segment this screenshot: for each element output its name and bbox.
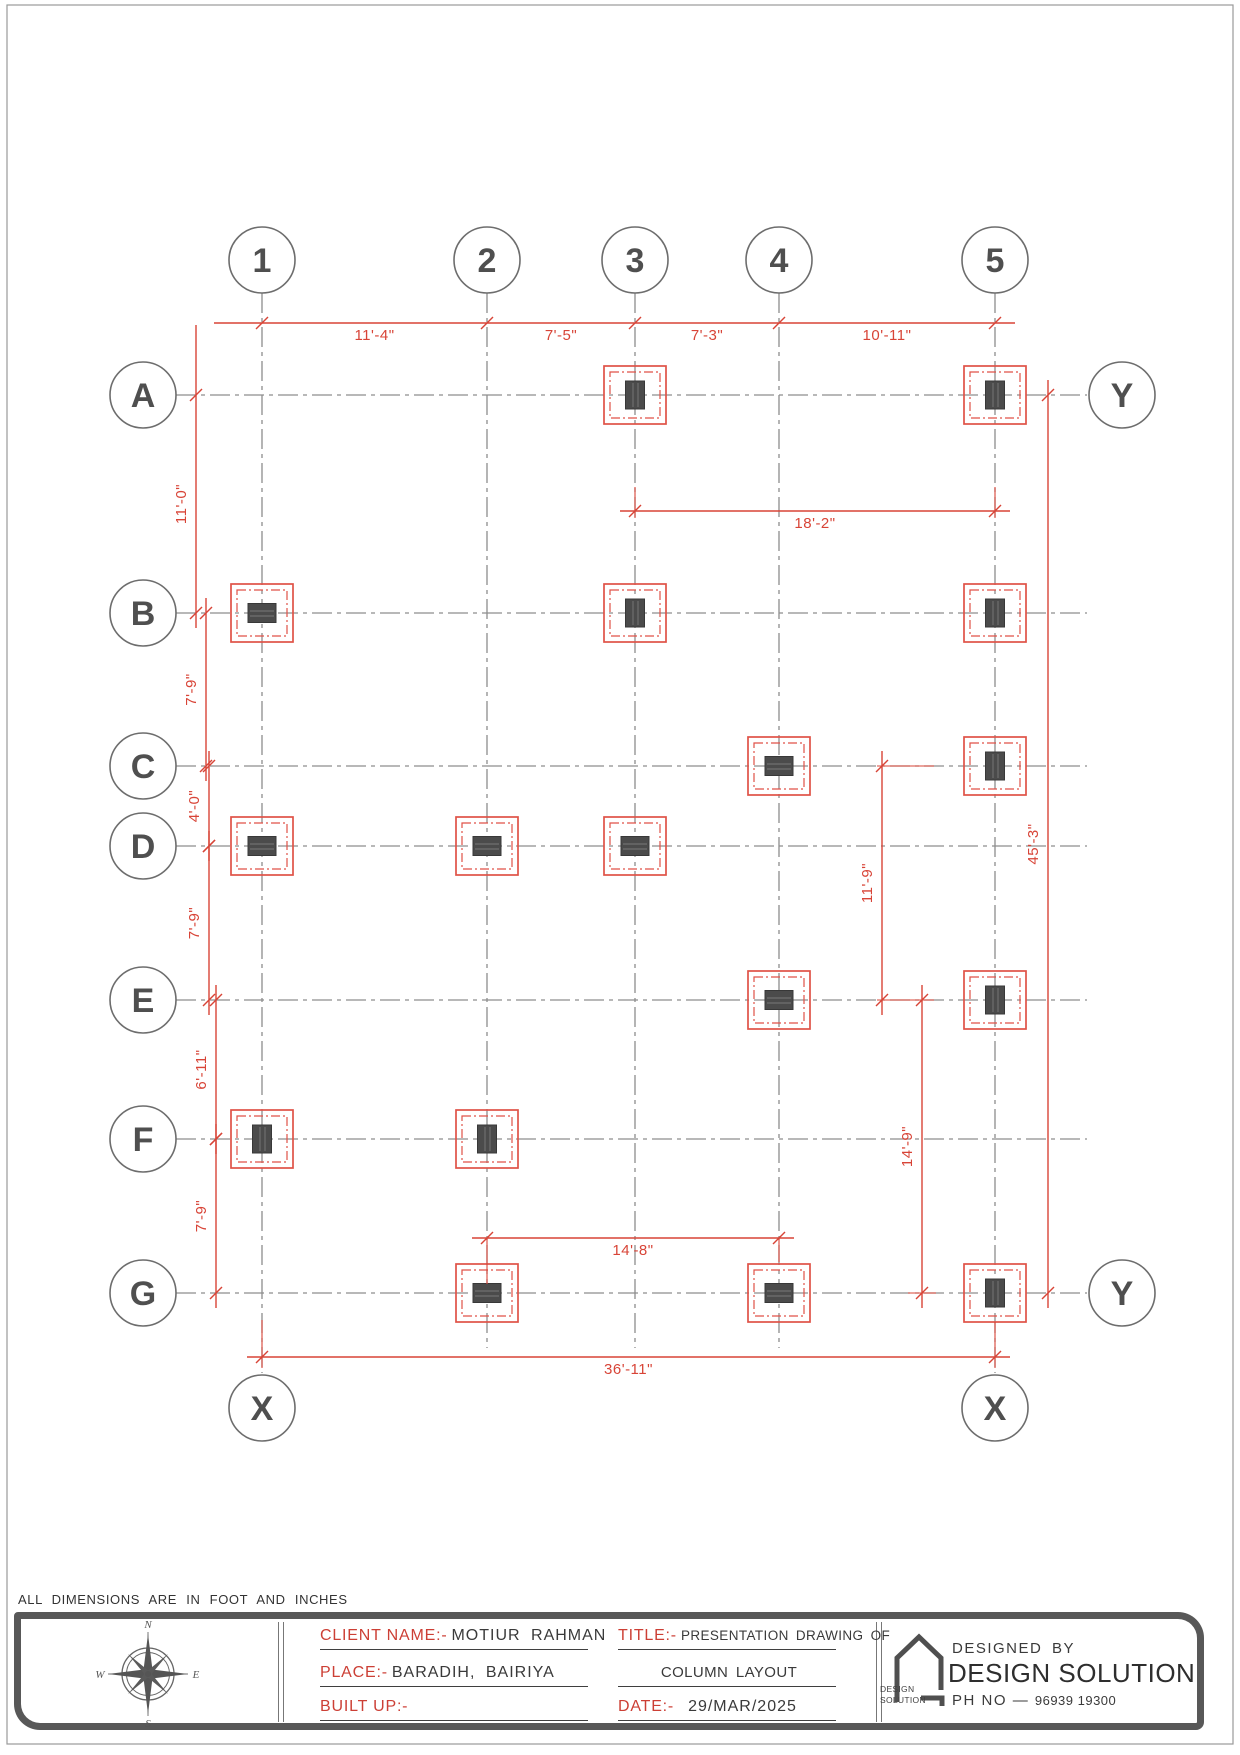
- field-client-name: CLIENT NAME:-MOTIUR RAHMAN: [320, 1627, 588, 1650]
- title-value-line2: COLUMN LAYOUT: [661, 1664, 797, 1681]
- column-B1: [248, 604, 276, 623]
- phone-separator: —: [1013, 1692, 1030, 1709]
- field-built-up: BUILT UP:-: [320, 1698, 588, 1721]
- dim-label-v-0-0: 11'-0": [173, 484, 190, 524]
- column-E4: [765, 991, 793, 1010]
- compass-label-n: N: [143, 1619, 152, 1631]
- column-F1: [253, 1125, 272, 1153]
- field-title-line2: COLUMN LAYOUT: [618, 1664, 836, 1687]
- grid-bubble-5-label: 5: [986, 242, 1005, 280]
- grid-bubble-D-label: D: [131, 828, 156, 866]
- brand-name: DESIGN SOLUTION: [948, 1658, 1195, 1689]
- date-value: 29/MAR/2025: [688, 1698, 797, 1715]
- logo-word-solution: SOLUTION: [880, 1695, 926, 1705]
- column-C5: [986, 752, 1005, 780]
- dim-label-h-0-3: 10'-11": [863, 327, 912, 344]
- grid-bubble-1-label: 1: [253, 242, 272, 280]
- dim-label-h-0-0: 11'-4": [354, 327, 394, 344]
- grid-bubble-3-label: 3: [626, 242, 645, 280]
- compass-center: [145, 1671, 151, 1677]
- column-F2: [478, 1125, 497, 1153]
- grid-bubble-G-label: G: [130, 1275, 156, 1313]
- compass-rose-icon: N S W E: [92, 1618, 204, 1730]
- column-A5: [986, 381, 1005, 409]
- title-block-divider: [278, 1622, 279, 1722]
- plan-svg: 12345ABCDEFGXXYY11'-4"7'-5"7'-3"10'-11"1…: [0, 0, 1240, 1755]
- title-label: TITLE:-: [618, 1627, 677, 1644]
- compass-label-s: S: [145, 1718, 151, 1730]
- built-up-label: BUILT UP:-: [320, 1698, 408, 1715]
- column-footings: [231, 366, 1026, 1322]
- column-G5: [986, 1279, 1005, 1307]
- phone-number: 96939 19300: [1035, 1693, 1116, 1708]
- dim-label-h-0-1: 7'-5": [545, 327, 577, 344]
- dim-label-v-5-0: 7'-9": [193, 1200, 210, 1232]
- date-label: DATE:-: [618, 1698, 674, 1715]
- design-solution-logo-icon: DESIGN SOLUTION: [880, 1628, 958, 1710]
- grid-lines: [176, 293, 1087, 1373]
- dim-label-h-3-0: 36'-11": [604, 1361, 653, 1378]
- dimensions: 11'-4"7'-5"7'-3"10'-11"18'-2"14'-8"36'-1…: [173, 317, 1054, 1378]
- column-E5: [986, 986, 1005, 1014]
- column-D2: [473, 837, 501, 856]
- designed-by-text: DESIGNED BY: [952, 1640, 1075, 1657]
- drawing-sheet: 12345ABCDEFGXXYY11'-4"7'-5"7'-3"10'-11"1…: [0, 0, 1240, 1755]
- column-B5: [986, 599, 1005, 627]
- grid-bubble-E-label: E: [132, 982, 155, 1020]
- column-G2: [473, 1284, 501, 1303]
- dim-label-v-3-0: 7'-9": [186, 907, 203, 939]
- axis-bubble-y-A-label: Y: [1111, 377, 1134, 415]
- grid-bubble-F-label: F: [133, 1121, 154, 1159]
- grid-bubble-B-label: B: [131, 595, 156, 633]
- logo-word-design: DESIGN: [880, 1684, 914, 1694]
- column-D3: [621, 837, 649, 856]
- client-name-label: CLIENT NAME:-: [320, 1627, 447, 1644]
- grid-bubble-C-label: C: [131, 748, 156, 786]
- column-G4: [765, 1284, 793, 1303]
- dim-label-h-2-0: 14'-8": [612, 1242, 653, 1259]
- column-A3: [626, 381, 645, 409]
- client-name-value: MOTIUR RAHMAN: [451, 1627, 606, 1644]
- dim-label-v-6-0: 11'-9": [859, 863, 876, 903]
- dimensions-note: ALL DIMENSIONS ARE IN FOOT AND INCHES: [18, 1592, 348, 1607]
- field-date: DATE:-29/MAR/2025: [618, 1698, 836, 1721]
- phone-label: PH NO: [952, 1692, 1007, 1709]
- column-B3: [626, 599, 645, 627]
- place-value: BARADIH, BAIRIYA: [392, 1664, 555, 1681]
- dim-label-v-2-0: 4'-0": [186, 790, 203, 822]
- dim-label-v-1-0: 7'-9": [183, 673, 200, 705]
- dim-label-v-7-0: 14'-9": [899, 1126, 916, 1167]
- axis-bubble-y-G-label: Y: [1111, 1275, 1134, 1313]
- dim-label-h-0-2: 7'-3": [691, 327, 723, 344]
- phone-row: PH NO — 96939 19300: [952, 1692, 1116, 1709]
- field-title: TITLE:-PRESENTATION DRAWING OF: [618, 1627, 836, 1650]
- field-place: PLACE:-BARADIH, BAIRIYA: [320, 1664, 588, 1687]
- dim-label-v-8-0: 45'-3": [1025, 823, 1042, 864]
- axis-bubble-x-1-label: X: [251, 1390, 274, 1428]
- compass-label-e: E: [192, 1669, 200, 1681]
- grid-bubble-A-label: A: [131, 377, 156, 415]
- dim-label-h-1-0: 18'-2": [794, 515, 835, 532]
- dim-label-v-4-0: 6'-11": [193, 1049, 210, 1089]
- grid-bubble-2-label: 2: [478, 242, 497, 280]
- compass-label-w: W: [95, 1669, 105, 1681]
- place-label: PLACE:-: [320, 1664, 388, 1681]
- title-value: PRESENTATION DRAWING OF: [681, 1628, 890, 1643]
- axis-bubble-x-5-label: X: [984, 1390, 1007, 1428]
- grid-bubble-4-label: 4: [770, 242, 789, 280]
- title-block-divider: [283, 1622, 284, 1722]
- column-D1: [248, 837, 276, 856]
- column-C4: [765, 757, 793, 776]
